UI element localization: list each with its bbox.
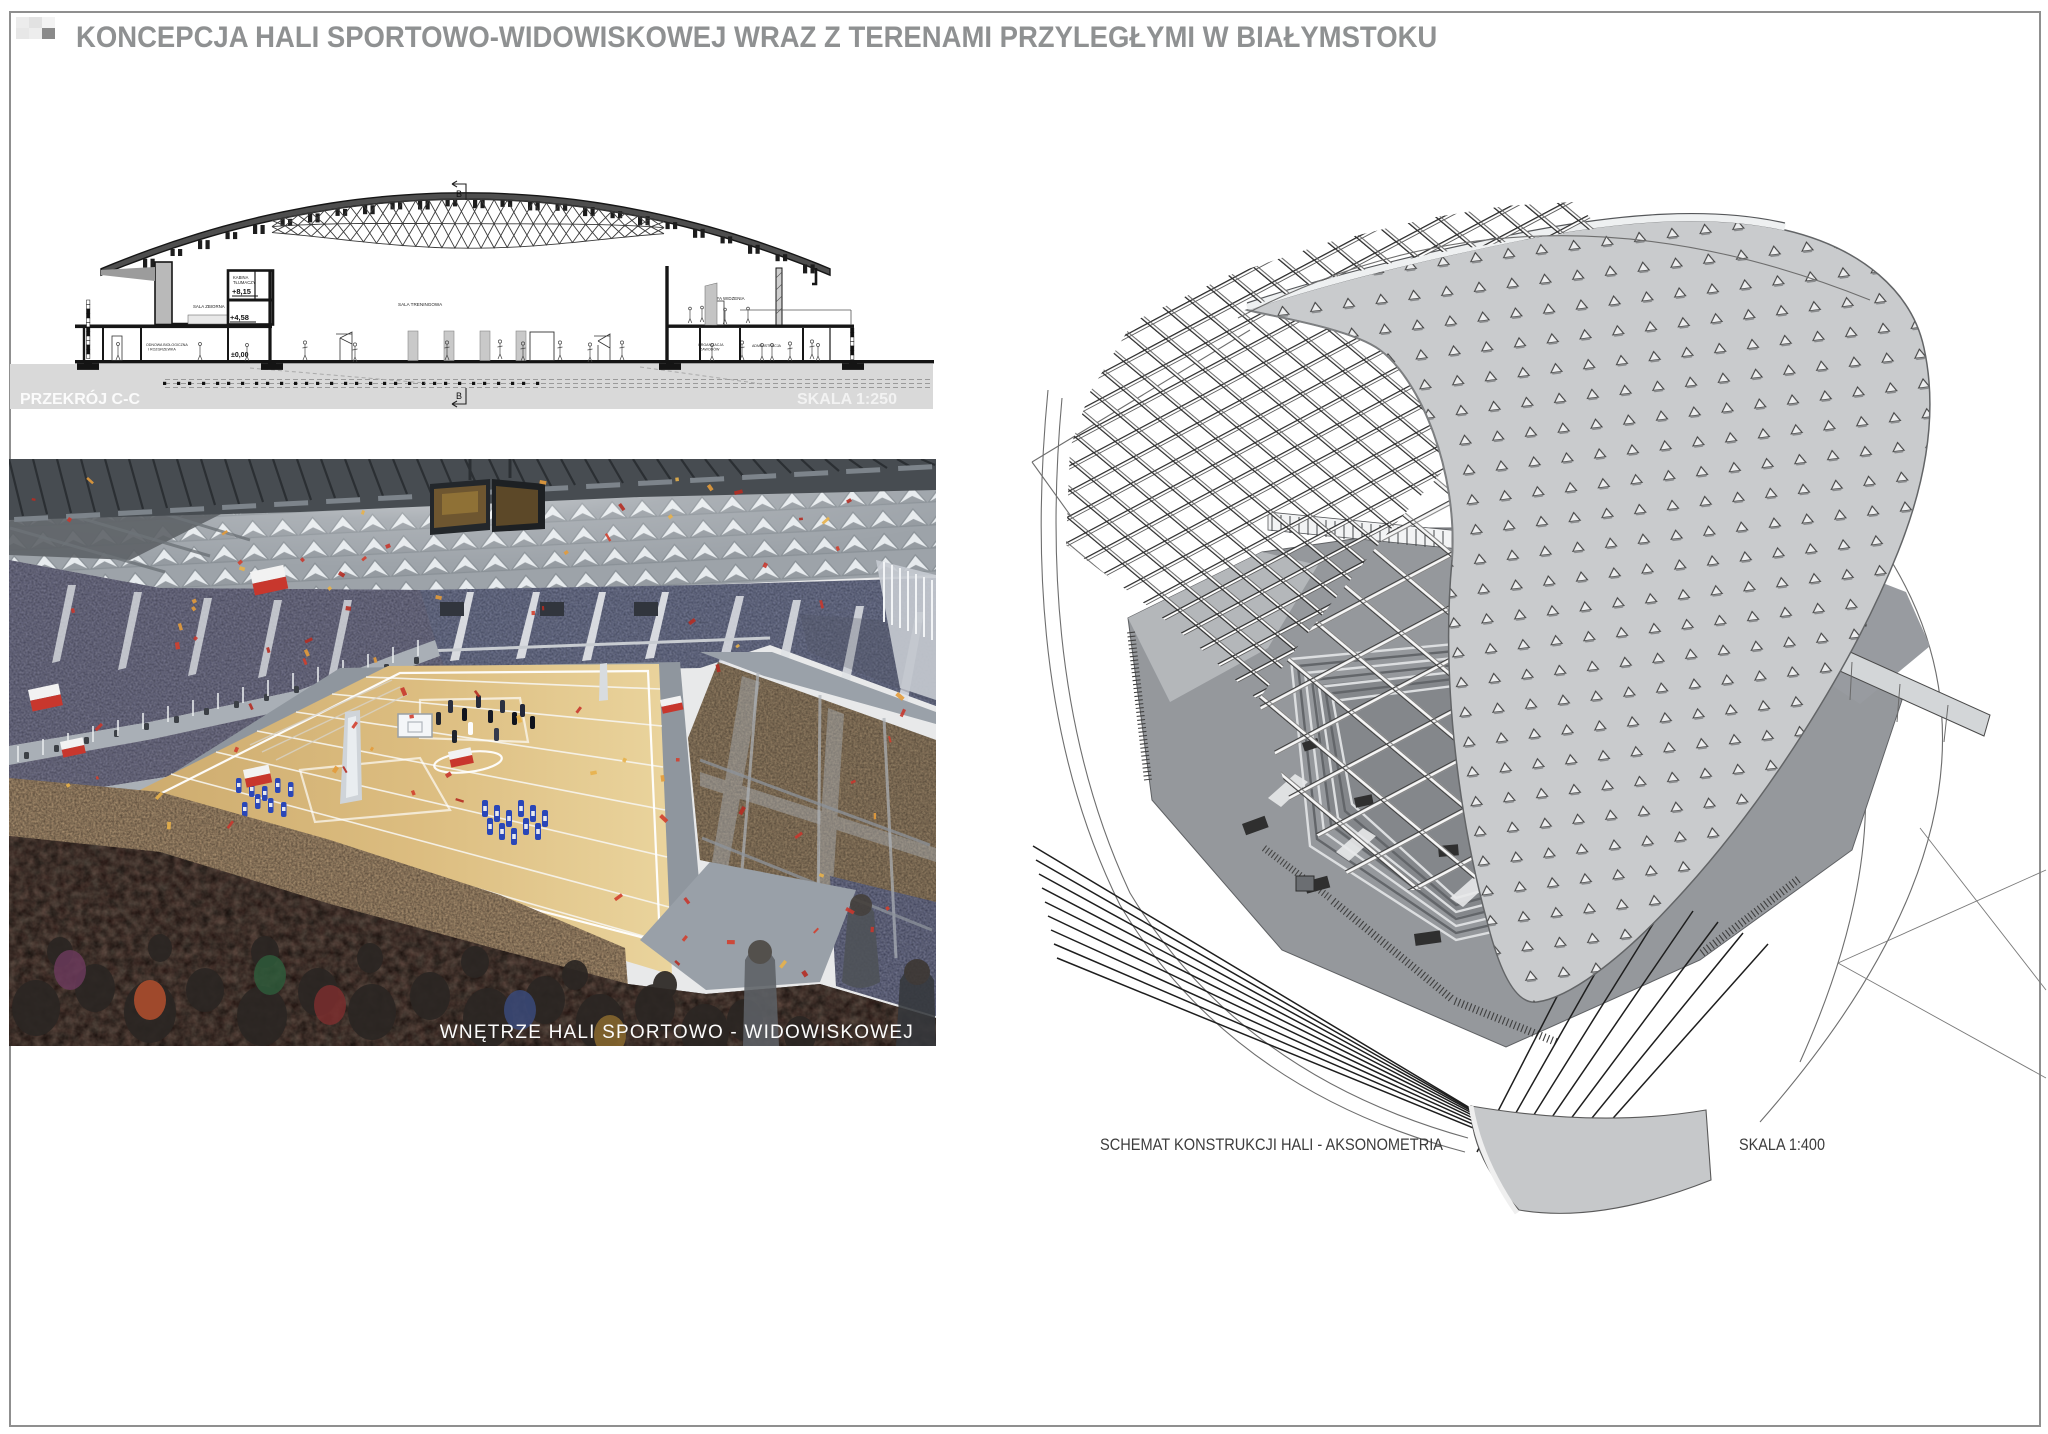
svg-text:SCHEMAT KONSTRUKCJI HALI - AK: SCHEMAT KONSTRUKCJI HALI - AKSONOMETRIA xyxy=(1100,1135,1444,1154)
svg-text:+4,58: +4,58 xyxy=(230,313,249,322)
svg-text:ADMINISTRACJA: ADMINISTRACJA xyxy=(752,344,782,348)
svg-text:I ROZGRZEWKA: I ROZGRZEWKA xyxy=(148,348,176,352)
svg-text:ODNOWA BIOLOGICZNA: ODNOWA BIOLOGICZNA xyxy=(146,343,188,347)
svg-text:SKALA 1:400: SKALA 1:400 xyxy=(1739,1135,1825,1154)
svg-text:SALA ZBIORNA: SALA ZBIORNA xyxy=(193,304,225,309)
svg-text:B: B xyxy=(456,391,462,401)
svg-text:B: B xyxy=(456,189,462,199)
svg-text:SALA TRENINGOWA: SALA TRENINGOWA xyxy=(398,302,443,307)
svg-text:+8,15: +8,15 xyxy=(232,287,251,296)
svg-text:PRZEKRÓJ C-C: PRZEKRÓJ C-C xyxy=(20,389,140,408)
svg-text:WNĘTRZE HALI SPORTOWO - WIDO: WNĘTRZE HALI SPORTOWO - WIDOWISKOWEJ xyxy=(440,1022,914,1043)
svg-text:TŁUMACZY: TŁUMACZY xyxy=(233,280,256,285)
svg-text:ZAWODÓW: ZAWODÓW xyxy=(700,347,720,352)
svg-text:SKALA 1:250: SKALA 1:250 xyxy=(797,391,897,408)
